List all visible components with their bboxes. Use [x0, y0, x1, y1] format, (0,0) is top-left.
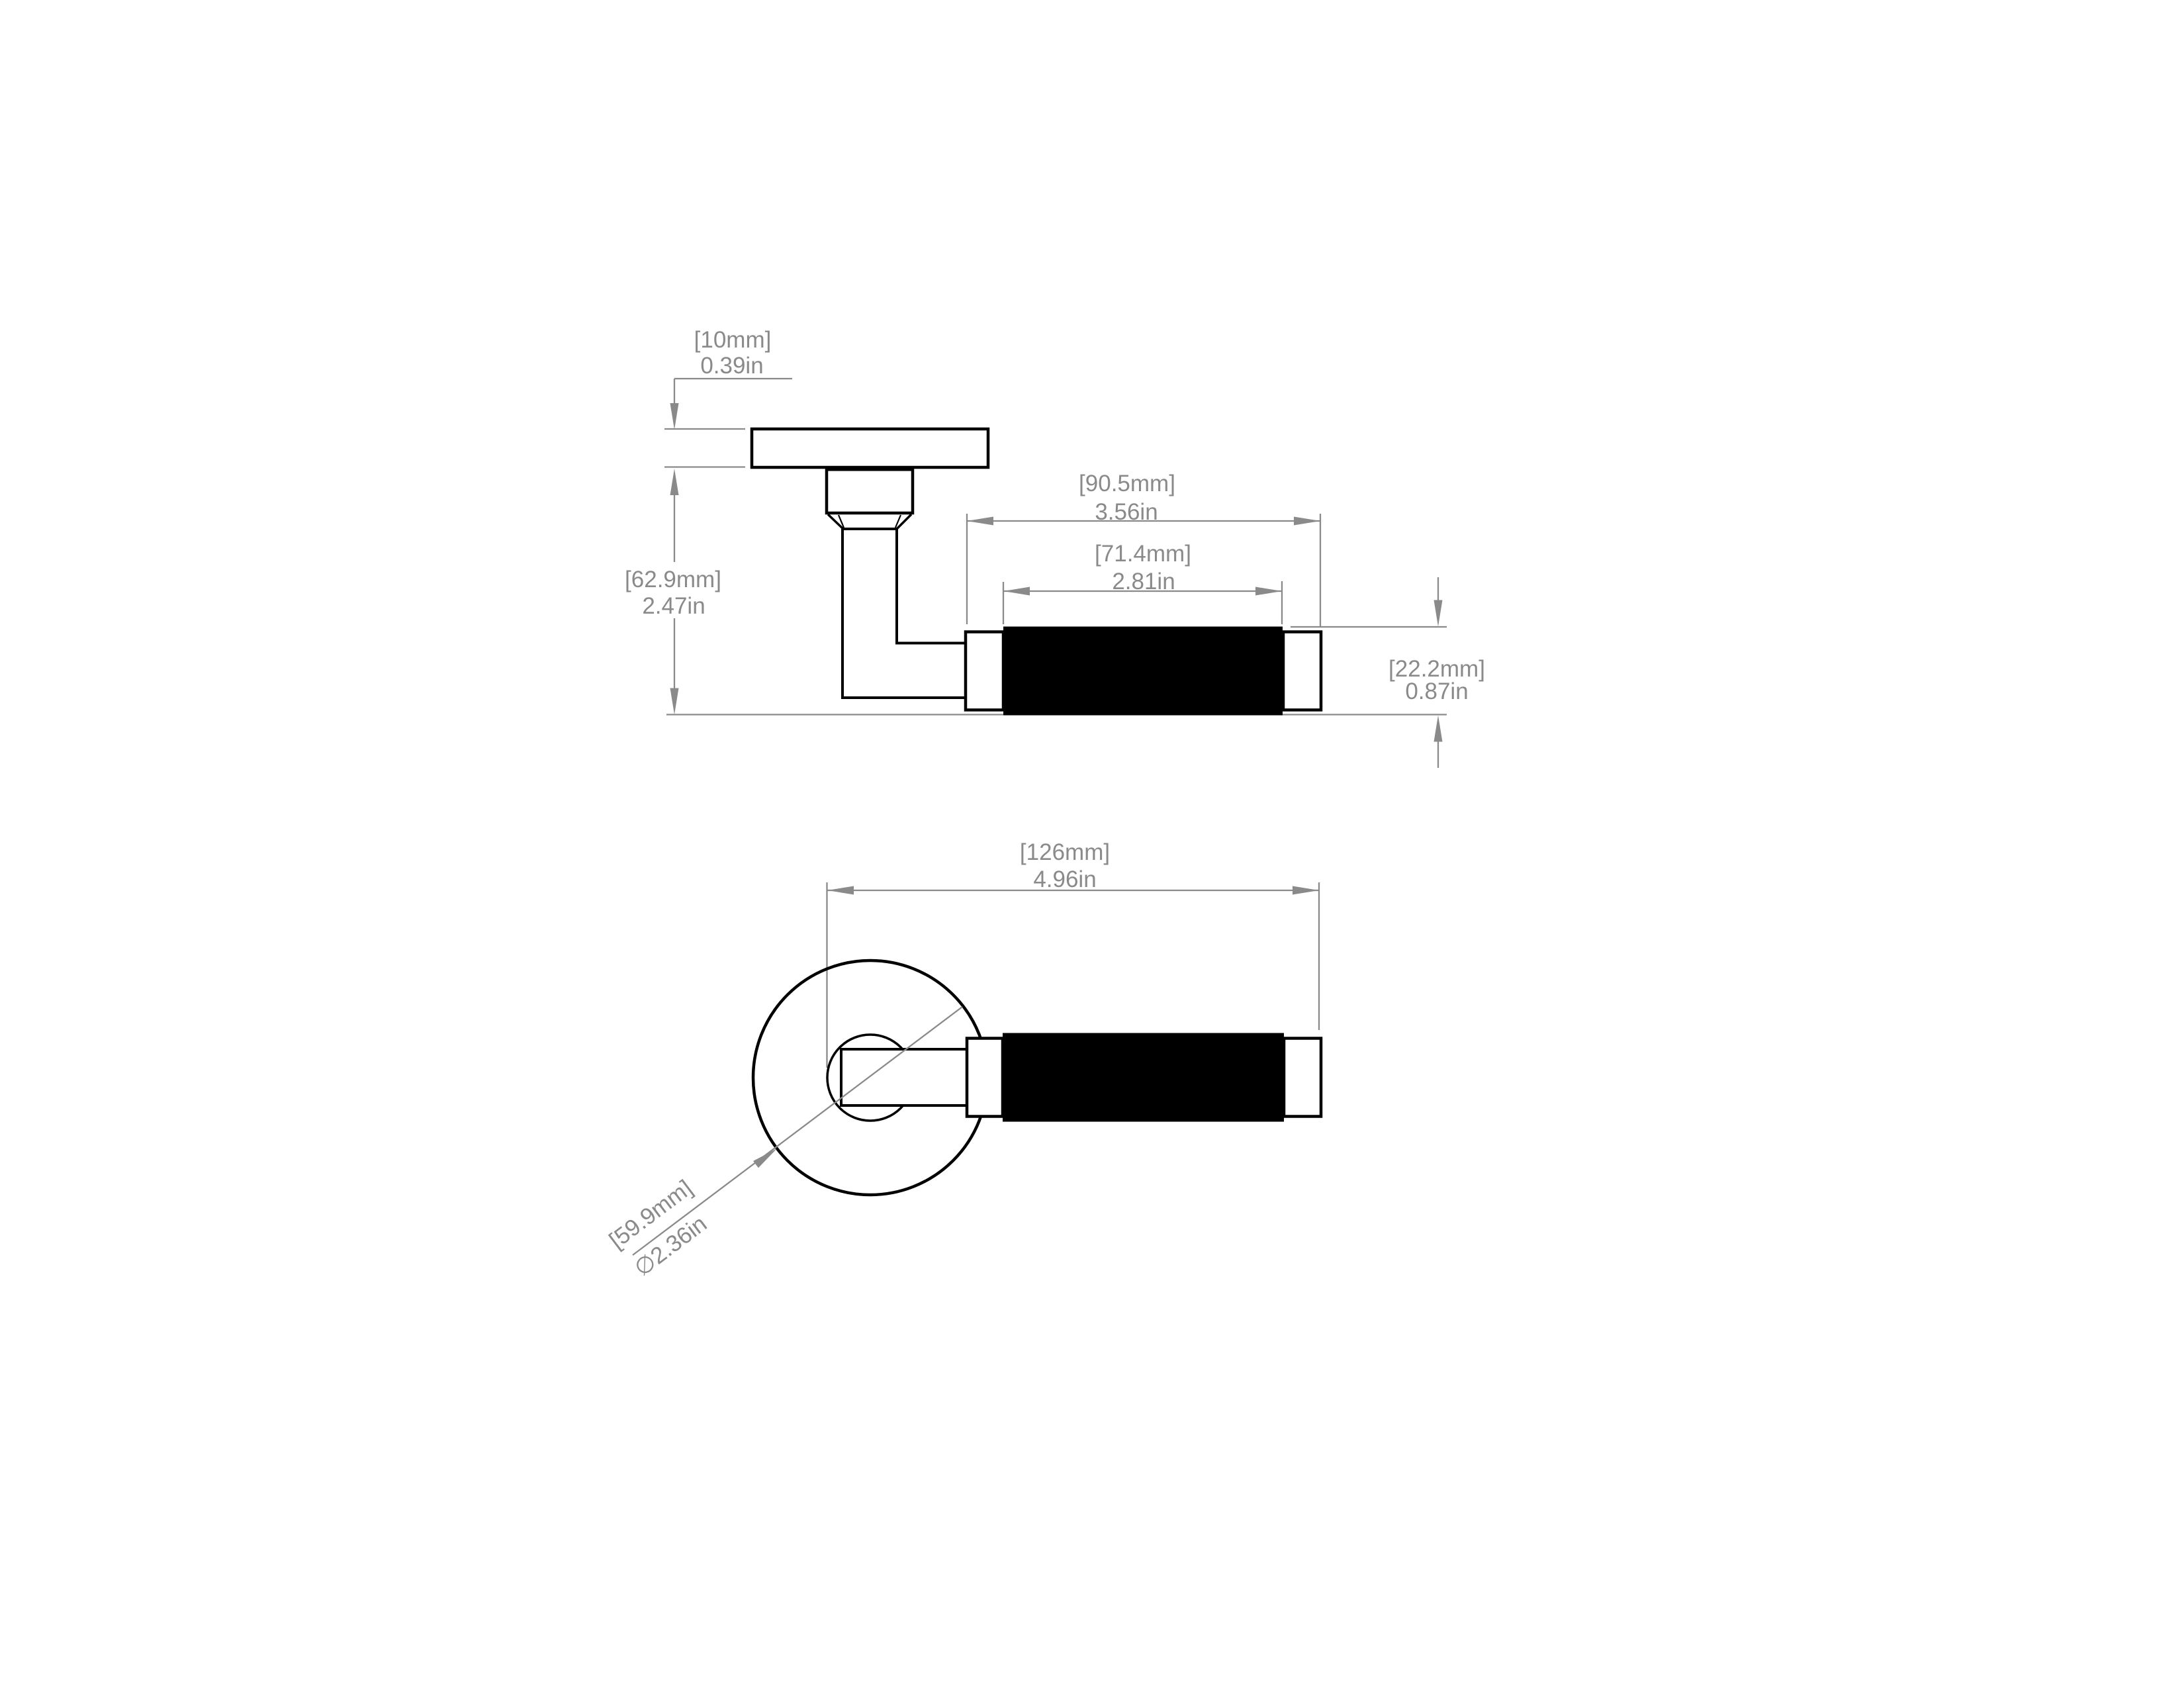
- svg-text:[90.5mm]: [90.5mm]: [1079, 471, 1175, 496]
- svg-text:0.87in: 0.87in: [1405, 679, 1468, 704]
- svg-text:[71.4mm]: [71.4mm]: [1095, 541, 1191, 567]
- svg-text:3.56in: 3.56in: [1095, 499, 1158, 525]
- svg-text:[126mm]: [126mm]: [1020, 839, 1110, 865]
- svg-text:2.81in: 2.81in: [1112, 569, 1175, 594]
- svg-text:0.39in: 0.39in: [700, 353, 763, 379]
- svg-text:[10mm]: [10mm]: [694, 327, 772, 353]
- svg-text:4.96in: 4.96in: [1033, 867, 1096, 892]
- svg-text:2.47in: 2.47in: [642, 593, 705, 619]
- svg-text:[62.9mm]: [62.9mm]: [625, 567, 721, 592]
